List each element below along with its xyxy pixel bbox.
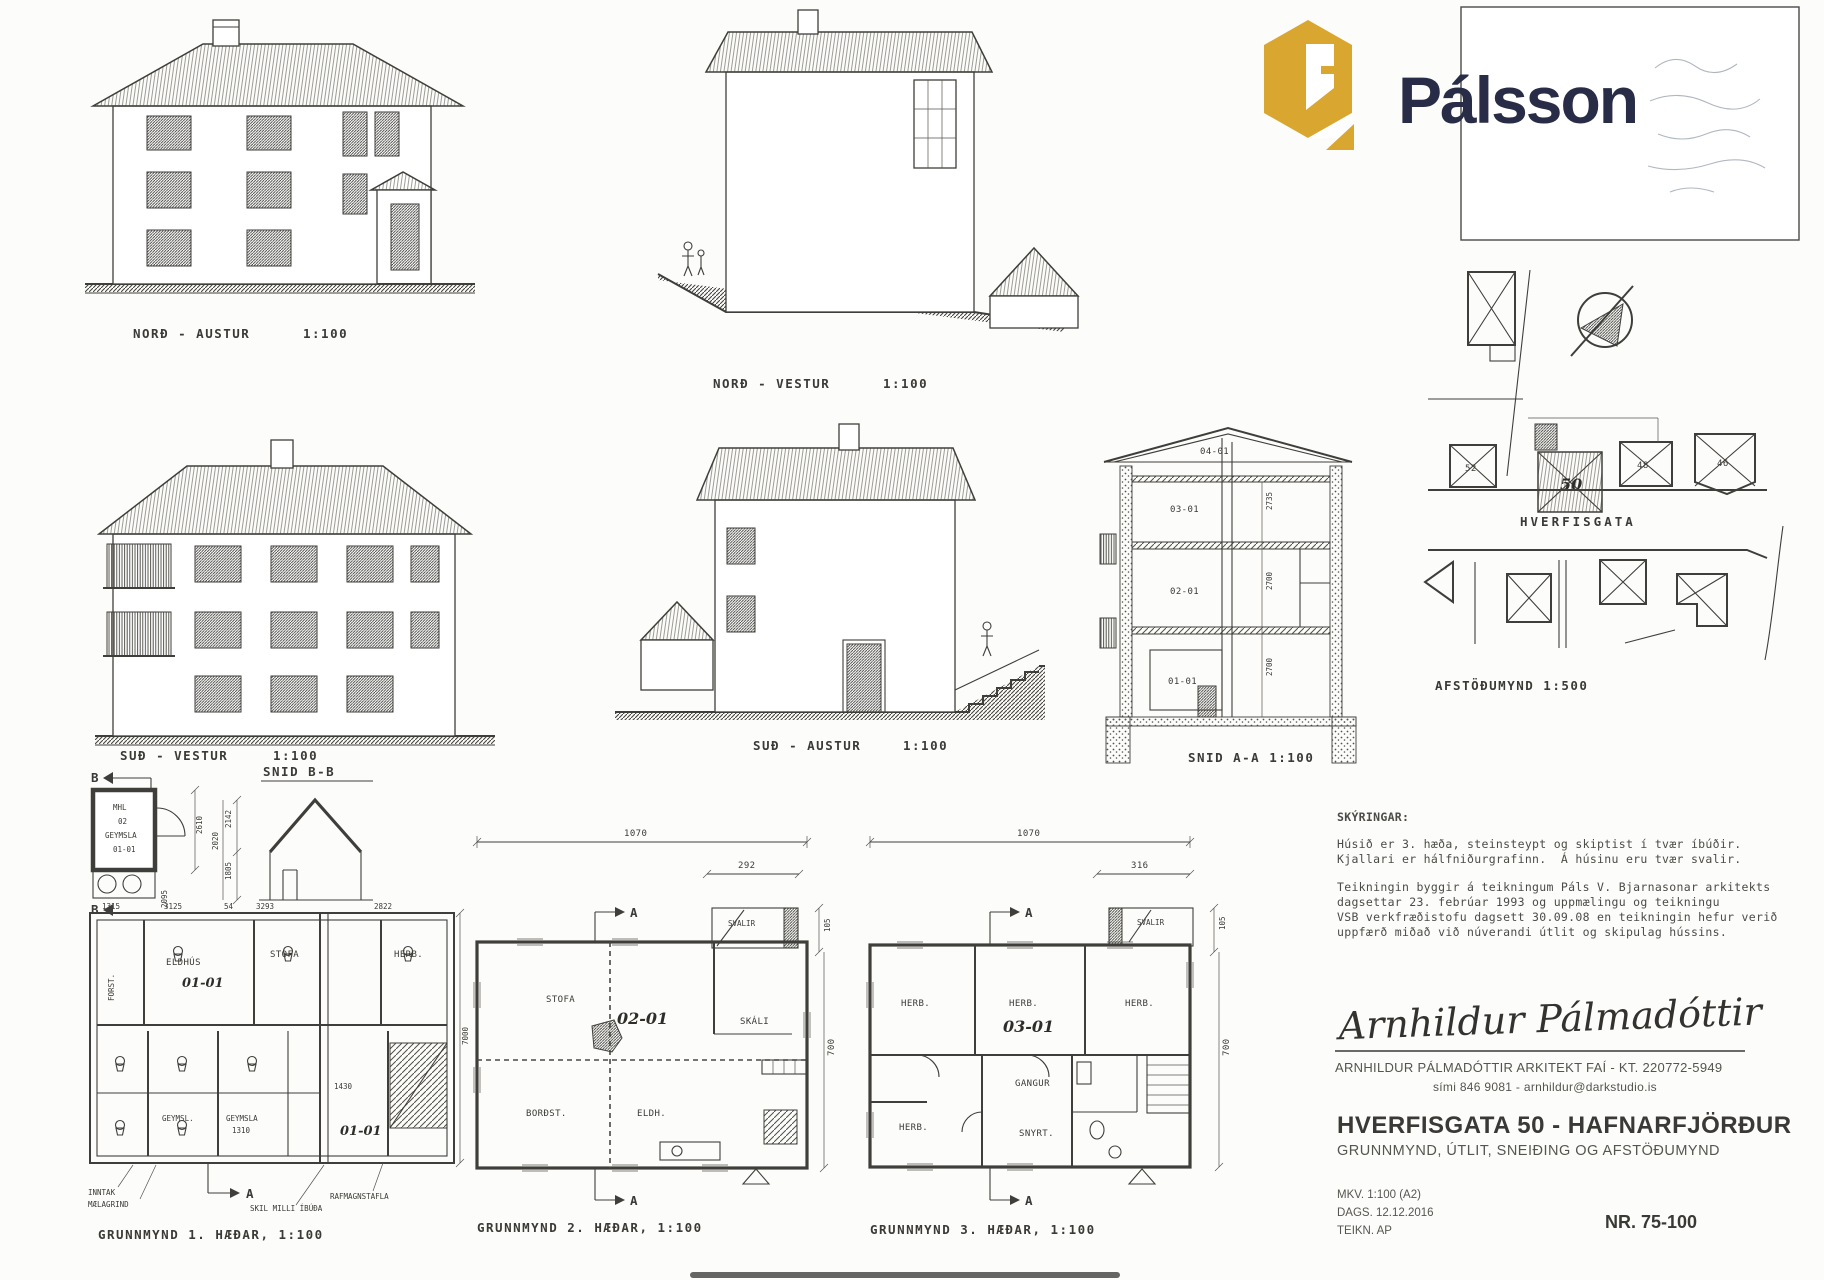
plan1-dim-2: 3125 [164, 902, 182, 911]
plan1-dim-3: 54 [224, 902, 234, 911]
plan1-room-geymsl: GEYMSL. [162, 1114, 194, 1123]
notes-heading: SKÝRINGAR: [1337, 810, 1787, 825]
plan2-dim-sub: 292 [738, 861, 755, 871]
plan1-section-marker: A [246, 1186, 255, 1201]
architect-name: ARNHILDUR PÁLMADÓTTIR ARKITEKT FAÍ - KT.… [1335, 1060, 1755, 1075]
section-unit-01: 01-01 [1168, 677, 1197, 687]
snid-bb-dim-1: 2142 [224, 810, 233, 828]
section-dim-1: 2735 [1265, 492, 1274, 510]
elevation-se-label: SUÐ - AUSTUR [753, 738, 861, 753]
plan3-room-svalir: SVALIR [1137, 918, 1165, 927]
architect-contact: sími 846 9081 - arnhildur@darkstudio.is [1335, 1080, 1755, 1094]
section-b-marker-top: B [91, 770, 100, 785]
storage-dim-height: 2610 [195, 815, 204, 834]
notes-p2-l2: dagsettar 23. febrúar 1993 og uppmælingu… [1337, 895, 1787, 910]
snid-bb-dim-3: 1805 [224, 862, 233, 880]
plan3-room-herb2: HERB. [1009, 999, 1038, 1009]
elevation-se-scale: 1:100 [903, 738, 948, 753]
plan1-dim-7: 1430 [334, 1082, 353, 1091]
lot-48-label: 48 [1637, 461, 1649, 471]
plan2-room-skali: SKÁLI [740, 1015, 769, 1027]
plan1-unit-label: 01-01 [182, 976, 224, 991]
plan1-dim-5: 2822 [374, 902, 392, 911]
sheet-drawn-by: TEIKN. AP [1337, 1222, 1434, 1240]
plan2-dim-105: 105 [823, 918, 832, 932]
plan2-room-stofa: STOFA [546, 995, 575, 1005]
section-unit-03: 03-01 [1170, 505, 1199, 515]
notes-p1-l1: Húsið er 3. hæða, steinsteypt og skiptis… [1337, 837, 1787, 852]
storage-name: GEYMSLA [105, 831, 137, 840]
plan2-dim-700: 700 [827, 1039, 837, 1056]
section-a-a-drawing: 04-01 03-01 02-01 01-01 2735 2700 2700 S… [1100, 418, 1370, 778]
lot-46-label: 46 [1717, 459, 1729, 469]
floor-plan-1-drawing: 1315 3125 54 3293 2822 FORST. ELDHÚS 01-… [78, 893, 473, 1253]
section-unit-02: 02-01 [1170, 587, 1199, 597]
site-plan-drawing: 52 50 48 46 HVERFISGATA AFSTÖÐUMYND 1:50… [1395, 228, 1824, 698]
sheet-scale: MKV. 1:100 (A2) [1337, 1186, 1434, 1204]
elevation-ne-label: NORÐ - AUSTUR [133, 326, 250, 341]
plan3-marker-bottom: A [1025, 1193, 1034, 1208]
plan3-room-snyrt: SNYRT. [1019, 1129, 1054, 1139]
street-label: HVERFISGATA [1520, 514, 1636, 529]
plan3-dim-sub: 316 [1131, 861, 1148, 871]
palsson-logo-icon [1262, 18, 1356, 156]
elevation-ne-scale: 1:100 [303, 326, 348, 341]
storage-unit: 01-01 [113, 845, 136, 854]
plan3-marker-top: A [1025, 905, 1034, 920]
notes-p2-l4: uppfærð miðað við núverandi útlit og ski… [1337, 925, 1787, 940]
plan2-room-eldh: ELDH. [637, 1109, 666, 1119]
plan3-dim-top: 1070 [1017, 829, 1040, 839]
plan2-dim-top: 1070 [624, 829, 647, 839]
plan3-room-herb3: HERB. [1125, 999, 1154, 1009]
plan2-marker-bottom: A [630, 1193, 639, 1208]
lot-52-label: 52 [1465, 464, 1477, 474]
person-figures [682, 242, 704, 276]
storage-mhl: MHL [113, 803, 127, 812]
elevation-nord-vestur-drawing: NORÐ - VESTUR 1:100 [640, 8, 1070, 398]
elevation-sud-vestur-drawing: SUÐ - VESTUR 1:100 [95, 412, 495, 767]
storage-num: 02 [118, 817, 127, 826]
sheet-title: HVERFISGATA 50 - HAFNARFJÖRÐUR [1337, 1112, 1792, 1140]
plan2-unit-label: 02-01 [617, 1009, 668, 1028]
plan2-caption: GRUNNMYND 2. HÆÐAR, 1:100 [477, 1220, 703, 1235]
plan1-dim-4: 3293 [256, 902, 274, 911]
scan-smudge [690, 1272, 1120, 1278]
section-a-a-label: SNID A-A 1:100 [1188, 750, 1314, 765]
sheet-meta: MKV. 1:100 (A2) DAGS. 12.12.2016 TEIKN. … [1337, 1186, 1434, 1240]
plan1-dim-1: 1315 [102, 902, 120, 911]
section-b-b-label: SNID B-B [263, 764, 335, 779]
plan1-unit-label-2: 01-01 [340, 1124, 382, 1139]
plan1-room-geymsla: GEYMSLA [226, 1114, 258, 1123]
plan1-room-eldhus: ELDHÚS [166, 956, 201, 968]
notes-p1-l2: Kjallari er hálfniðurgrafinn. Á húsinu e… [1337, 852, 1787, 867]
notes-p2-l3: VSB verkfræðistofu dagsett 30.09.08 en t… [1337, 910, 1787, 925]
site-plan-label: AFSTÖÐUMYND 1:500 [1435, 678, 1588, 693]
signature-block: Arnhildur Pálmadóttir [1335, 985, 1755, 1063]
plan1-callout-rafmagnstafla: RAFMAGNSTAFLA [330, 1192, 389, 1201]
elevation-nw-scale: 1:100 [883, 376, 928, 391]
sheet-date: DAGS. 12.12.2016 [1337, 1204, 1434, 1222]
section-dim-3: 2700 [1265, 657, 1274, 676]
section-dim-2: 2700 [1265, 571, 1274, 590]
plan3-room-herb1: HERB. [901, 999, 930, 1009]
plan1-room-stofa: STOFA [270, 950, 299, 960]
plan3-room-herb4: HERB. [899, 1123, 928, 1133]
plan3-dim-700: 700 [1222, 1039, 1232, 1056]
plan1-callout-inntak: INNTAK [88, 1188, 116, 1197]
lot-50-label: 50 [1560, 475, 1582, 494]
drawing-sheet: NORÐ - AUSTUR 1:100 NORÐ - VESTUR 1:100 … [0, 0, 1824, 1280]
plan3-dim-105: 105 [1218, 916, 1227, 930]
section-unit-04: 04-01 [1200, 447, 1229, 457]
plan2-room-svalir: SVALIR [728, 919, 756, 928]
floor-plan-3-drawing: 1070 316 105 700 SVALIR HERB. HERB. 03-0… [857, 812, 1252, 1247]
person-figure [981, 622, 993, 656]
sheet-number: NR. 75-100 [1605, 1212, 1697, 1233]
plan1-callout-skil: SKIL MILLI ÍBÚÐA [250, 1204, 323, 1213]
elevation-nw-label: NORÐ - VESTUR [713, 376, 830, 391]
plan1-caption: GRUNNMYND 1. HÆÐAR, 1:100 [98, 1227, 324, 1242]
plan2-marker-top: A [630, 905, 639, 920]
plan1-room-forst: FORST. [107, 974, 116, 1001]
architect-signature: Arnhildur Pálmadóttir [1335, 989, 1765, 1048]
notes-p2-l1: Teikningin byggir á teikningum Páls V. B… [1337, 880, 1787, 895]
plan3-caption: GRUNNMYND 3. HÆÐAR, 1:100 [870, 1222, 1096, 1237]
plan3-unit-label: 03-01 [1003, 1017, 1054, 1036]
floor-plan-2-drawing: 1070 292 105 700 SVALIR STOFA 02-01 SKÁL… [462, 812, 852, 1244]
elevation-nord-austur-drawing: NORÐ - AUSTUR 1:100 [85, 12, 475, 357]
sheet-subtitle: GRUNNMYND, ÚTLIT, SNEIÐING OG AFSTÖÐUMYN… [1337, 1143, 1720, 1159]
notes-block: SKÝRINGAR: Húsið er 3. hæða, steinsteypt… [1337, 810, 1787, 940]
snid-bb-dim-2: 2020 [211, 831, 220, 850]
plan2-room-bordst: BORÐST. [526, 1109, 567, 1119]
palsson-wordmark: Pálsson [1398, 62, 1637, 138]
plan3-room-gangur: GANGUR [1015, 1079, 1050, 1089]
plan1-callout-maelagrind: MÆLAGRIND [88, 1200, 129, 1209]
plan1-dim-8: 1310 [232, 1126, 251, 1135]
elevation-sud-austur-drawing: SUÐ - AUSTUR 1:100 [615, 398, 1045, 773]
plan1-room-herb: HERB. [394, 950, 423, 960]
